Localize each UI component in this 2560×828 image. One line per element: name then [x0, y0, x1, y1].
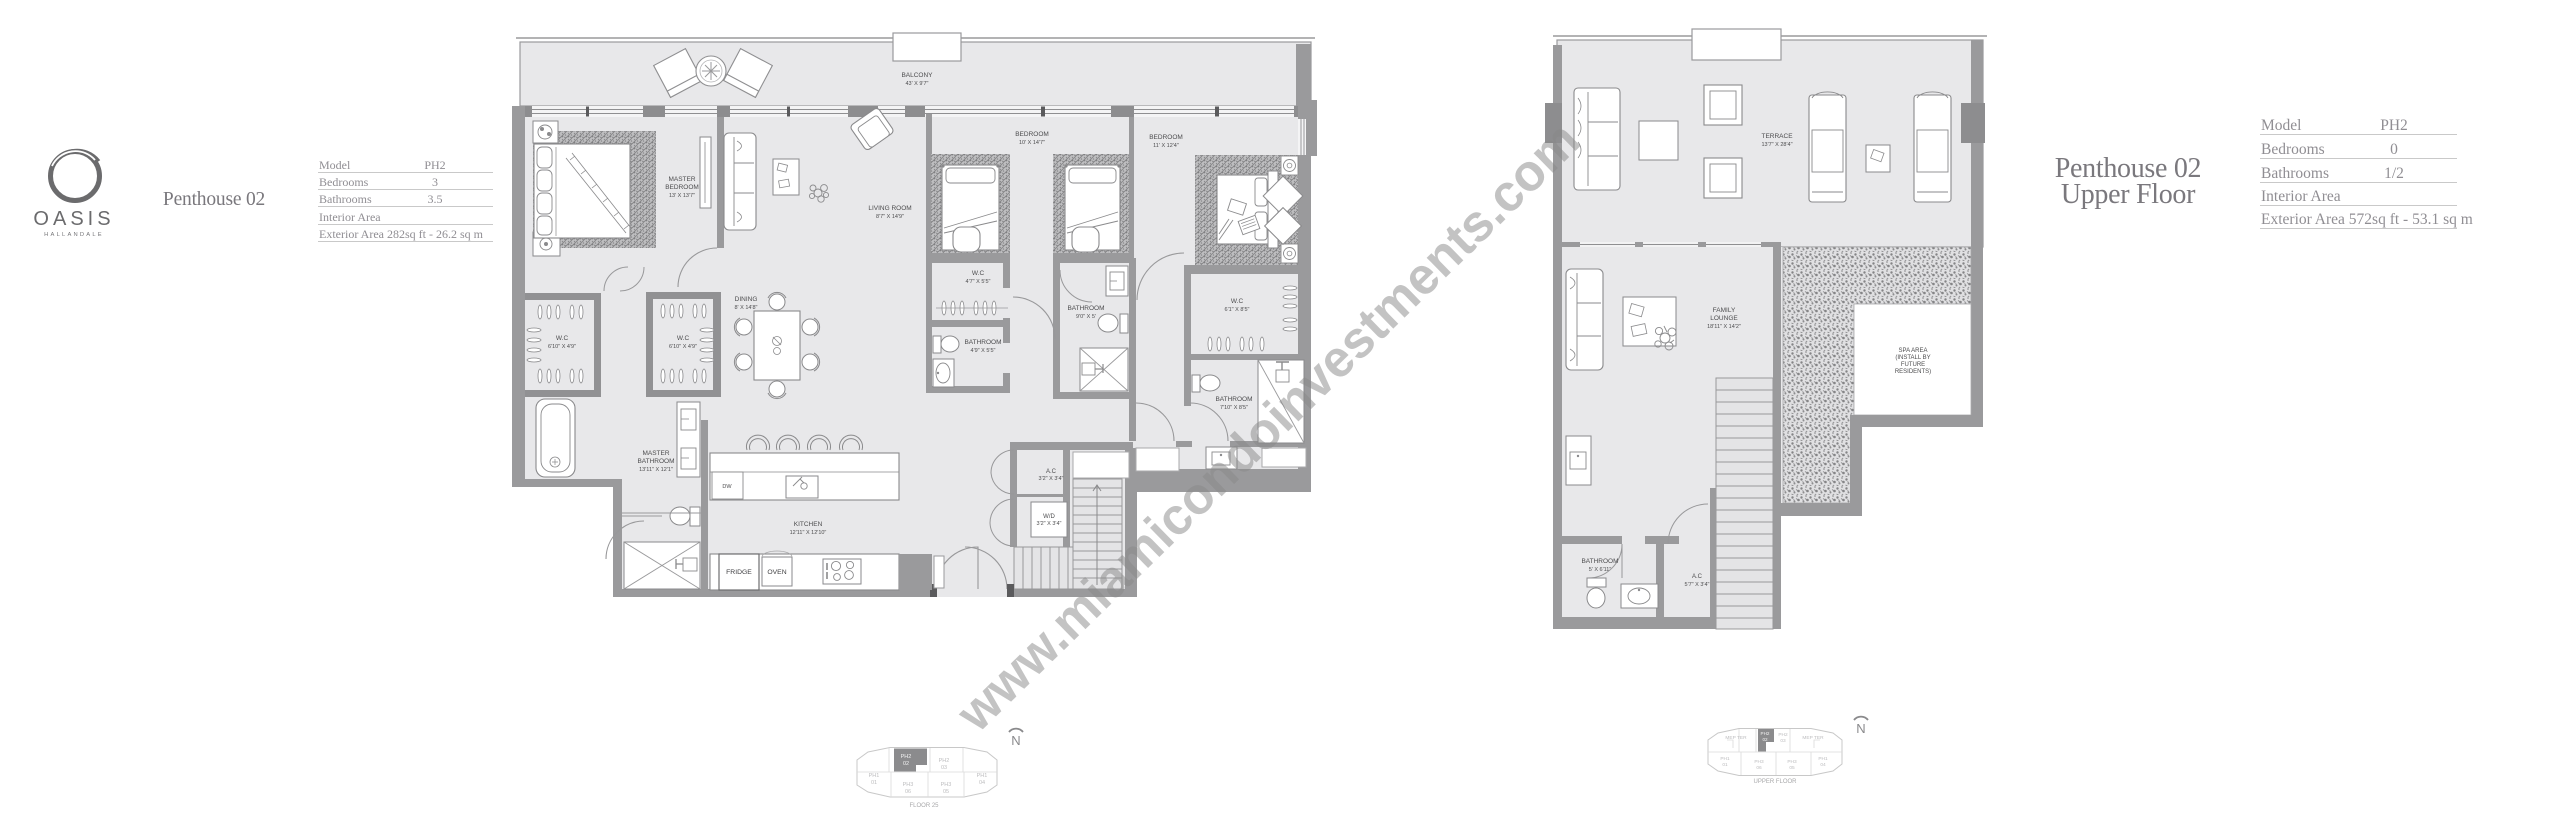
- svg-text:13'11" X 12'1": 13'11" X 12'1": [639, 467, 673, 473]
- svg-text:W.C: W.C: [556, 335, 569, 342]
- svg-text:PH2: PH2: [424, 158, 445, 172]
- svg-text:Bedrooms: Bedrooms: [319, 175, 369, 189]
- svg-text:MASTER: MASTER: [668, 176, 695, 183]
- svg-text:RESIDENTS): RESIDENTS): [1895, 369, 1931, 375]
- svg-text:BATHROOM: BATHROOM: [1581, 558, 1618, 565]
- svg-text:3'2" X 3'4": 3'2" X 3'4": [1039, 476, 1064, 482]
- svg-text:5' X 6'11": 5' X 6'11": [1589, 567, 1612, 573]
- svg-text:05: 05: [943, 789, 949, 795]
- svg-text:UPPER FLOOR: UPPER FLOOR: [1753, 779, 1797, 785]
- svg-text:03: 03: [1780, 738, 1786, 744]
- svg-text:Upper Floor: Upper Floor: [2061, 179, 2196, 210]
- svg-text:4'9" X 5'5": 4'9" X 5'5": [971, 348, 996, 354]
- svg-text:9'0" X 5': 9'0" X 5': [1076, 314, 1096, 320]
- svg-text:BATHROOM: BATHROOM: [637, 458, 674, 465]
- svg-text:MEP TER: MEP TER: [1802, 735, 1824, 741]
- svg-text:BATHROOM: BATHROOM: [1215, 396, 1252, 403]
- svg-text:Bedrooms: Bedrooms: [2261, 141, 2325, 158]
- svg-text:5'7" X 3'4": 5'7" X 3'4": [1685, 582, 1710, 588]
- svg-text:(INSTALL BY: (INSTALL BY: [1895, 355, 1930, 361]
- svg-text:PH1: PH1: [1720, 756, 1730, 762]
- svg-text:LIVING ROOM: LIVING ROOM: [868, 205, 911, 212]
- svg-text:3: 3: [432, 175, 438, 189]
- svg-text:DINING: DINING: [735, 296, 758, 303]
- svg-text:02: 02: [1762, 737, 1768, 742]
- svg-text:13' X 13'7": 13' X 13'7": [669, 193, 695, 199]
- svg-text:PH2: PH2: [939, 758, 950, 764]
- svg-text:FAMILY: FAMILY: [1713, 307, 1736, 314]
- svg-text:HALLANDALE: HALLANDALE: [44, 232, 104, 238]
- svg-text:6'10" X 4'9": 6'10" X 4'9": [669, 344, 697, 350]
- svg-text:Penthouse 02: Penthouse 02: [163, 189, 265, 210]
- svg-text:04: 04: [1820, 762, 1826, 768]
- svg-text:W.C: W.C: [1231, 298, 1244, 305]
- svg-text:W.C: W.C: [972, 270, 985, 277]
- svg-text:1/2: 1/2: [2384, 165, 2404, 182]
- svg-text:Model: Model: [319, 158, 351, 172]
- svg-text:PH2: PH2: [2380, 117, 2408, 134]
- svg-text:FUTURE: FUTURE: [1901, 362, 1925, 368]
- svg-text:A.C: A.C: [1692, 574, 1703, 580]
- svg-text:Exterior Area 282sq ft - 26.2: Exterior Area 282sq ft - 26.2 sq m: [319, 227, 484, 241]
- svg-text:3.5: 3.5: [428, 192, 443, 206]
- svg-text:OASIS: OASIS: [33, 208, 114, 230]
- svg-text:W/D: W/D: [1043, 514, 1055, 520]
- svg-text:N: N: [1856, 721, 1865, 736]
- svg-text:43' X 9'7": 43' X 9'7": [905, 81, 928, 87]
- svg-text:N: N: [1011, 733, 1020, 748]
- svg-text:BATHROOM: BATHROOM: [1067, 305, 1104, 312]
- svg-text:BEDROOM: BEDROOM: [665, 184, 699, 191]
- svg-text:LOUNGE: LOUNGE: [1710, 315, 1738, 322]
- svg-text:02: 02: [903, 761, 909, 767]
- svg-text:FLOOR 25: FLOOR 25: [909, 803, 939, 809]
- svg-text:06: 06: [1756, 765, 1762, 771]
- svg-text:Interior Area: Interior Area: [2261, 188, 2341, 205]
- svg-text:18'11" X 14'2": 18'11" X 14'2": [1707, 324, 1741, 330]
- svg-text:BEDROOM: BEDROOM: [1015, 131, 1049, 138]
- svg-text:12'11" X 12'10": 12'11" X 12'10": [790, 530, 827, 536]
- svg-text:PH1: PH1: [977, 773, 988, 779]
- svg-text:BATHROOM: BATHROOM: [964, 339, 1001, 346]
- svg-text:FRIDGE: FRIDGE: [726, 569, 752, 576]
- svg-text:4'7" X 5'5": 4'7" X 5'5": [966, 279, 991, 285]
- svg-text:PH1: PH1: [1818, 756, 1828, 762]
- svg-text:Bathrooms: Bathrooms: [2261, 165, 2329, 182]
- svg-text:BALCONY: BALCONY: [901, 72, 933, 79]
- svg-text:06: 06: [905, 789, 911, 795]
- svg-text:6'1" X 8'5": 6'1" X 8'5": [1225, 307, 1250, 313]
- svg-text:A.C: A.C: [1046, 469, 1057, 475]
- svg-text:PH3: PH3: [941, 782, 952, 788]
- svg-text:04: 04: [979, 780, 985, 786]
- svg-text:MEP TER: MEP TER: [1725, 735, 1747, 741]
- svg-text:W.C: W.C: [677, 335, 690, 342]
- svg-text:PH2: PH2: [901, 754, 912, 760]
- svg-text:6'10" X 4'9": 6'10" X 4'9": [548, 344, 576, 350]
- svg-text:Exterior Area 572sq ft - 53.1: Exterior Area 572sq ft - 53.1 sq m: [2261, 211, 2473, 228]
- svg-text:Interior Area: Interior Area: [319, 210, 381, 224]
- svg-text:MASTER: MASTER: [642, 450, 669, 457]
- svg-text:DW: DW: [722, 484, 732, 490]
- svg-text:PH3: PH3: [903, 782, 914, 788]
- svg-text:PH2: PH2: [1761, 731, 1770, 736]
- svg-text:03: 03: [941, 765, 947, 771]
- svg-text:PH1: PH1: [869, 773, 880, 779]
- svg-text:TERRACE: TERRACE: [1761, 133, 1793, 140]
- svg-text:05: 05: [1789, 765, 1795, 771]
- svg-text:Model: Model: [2261, 117, 2301, 134]
- svg-text:OVEN: OVEN: [767, 569, 786, 576]
- svg-text:KITCHEN: KITCHEN: [794, 521, 823, 528]
- svg-text:PH2: PH2: [1778, 732, 1788, 738]
- svg-text:SPA AREA: SPA AREA: [1899, 348, 1928, 354]
- svg-text:11' X 12'4": 11' X 12'4": [1153, 143, 1179, 149]
- svg-text:8'7" X 14'9": 8'7" X 14'9": [876, 214, 904, 220]
- svg-text:BEDROOM: BEDROOM: [1149, 134, 1183, 141]
- svg-text:PH3: PH3: [1787, 759, 1797, 765]
- svg-text:PH3: PH3: [1754, 759, 1764, 765]
- svg-text:01: 01: [1722, 762, 1728, 768]
- svg-text:10' X 14'7": 10' X 14'7": [1019, 140, 1045, 146]
- svg-text:01: 01: [871, 780, 877, 786]
- svg-text:0: 0: [2390, 141, 2398, 158]
- svg-text:3'2" X 3'4": 3'2" X 3'4": [1037, 521, 1062, 527]
- svg-text:8' X 14'8": 8' X 14'8": [734, 305, 757, 311]
- svg-text:Bathrooms: Bathrooms: [319, 192, 372, 206]
- svg-text:13'7" X 28'4": 13'7" X 28'4": [1761, 142, 1792, 148]
